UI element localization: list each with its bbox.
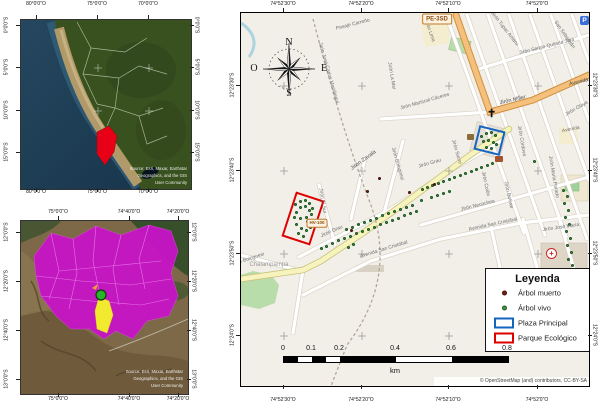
axis-label: 75°0'0"O	[87, 2, 107, 7]
axis-label: 10°0'0"S	[5, 100, 10, 119]
legend-item: Árbol vivo	[486, 300, 589, 315]
legend-item: Plaza Principal	[486, 315, 589, 330]
study-area-figure: Source: Esri, Maxar, Earthstar Geographi…	[0, 0, 606, 412]
scale-bar-graphic	[283, 356, 509, 363]
axis-tick	[448, 385, 449, 389]
tree-alive-point	[567, 258, 570, 261]
tree-alive-point	[299, 200, 302, 203]
axis-label: 74°40'0"O	[118, 397, 141, 402]
axis-tick	[187, 330, 191, 331]
svg-text:Source: Esri, Maxar, Earthstar: Source: Esri, Maxar, Earthstar	[130, 166, 188, 171]
tree-alive-point	[302, 235, 305, 238]
axis-tick	[236, 85, 240, 86]
tree-alive-point	[304, 205, 307, 208]
tree-alive-point	[409, 212, 412, 215]
city-map: N S O E ✝ + P Pasaje CarreñoJirón José C…	[240, 12, 590, 387]
tree-dead-point	[408, 191, 411, 194]
tree-alive-point	[295, 223, 298, 226]
axis-tick	[16, 330, 20, 331]
tree-alive-point	[459, 174, 462, 177]
axis-tick	[190, 25, 194, 26]
tree-dead-point	[378, 177, 381, 180]
legend-rect-symbol	[494, 317, 514, 328]
street-label: Chalampampa	[249, 262, 288, 268]
legend-item-label: Plaza Principal	[518, 318, 568, 327]
scale-bar-number: 0.1	[306, 345, 316, 352]
tree-alive-point	[590, 97, 591, 100]
scale-bar-unit: km	[390, 366, 400, 375]
axis-tick	[16, 152, 20, 153]
tree-alive-point	[442, 192, 445, 195]
tree-alive-point	[361, 230, 364, 233]
axis-tick	[187, 281, 191, 282]
scale-bar-number: 0	[281, 345, 285, 352]
tree-alive-point	[487, 139, 490, 142]
axis-tick	[16, 110, 20, 111]
tree-alive-point	[300, 227, 303, 230]
legend-item: Árbol muerto	[486, 285, 589, 300]
axis-tick	[129, 216, 130, 220]
legend-dot-symbol	[502, 290, 507, 295]
tree-alive-point	[490, 147, 493, 150]
axis-tick	[148, 188, 149, 192]
axis-label: 10°0'0"S	[194, 100, 199, 119]
axis-label: 12°0'0"S	[5, 222, 10, 241]
tree-alive-point	[295, 211, 298, 214]
tree-alive-point	[448, 190, 451, 193]
axis-tick	[588, 335, 592, 336]
svg-text:User Community: User Community	[151, 383, 184, 388]
axis-label: 70°0'0"O	[138, 2, 158, 7]
tree-alive-point	[426, 186, 429, 189]
tree-alive-point	[448, 178, 451, 181]
svg-text:Source: Esri, Maxar, Earthstar: Source: Esri, Maxar, Earthstar	[126, 369, 184, 374]
axis-tick	[187, 232, 191, 233]
province-map: Source: Esri, Maxar, Earthstar Geographi…	[20, 220, 189, 395]
axis-tick	[16, 281, 20, 282]
axis-label: 74°52'30"O	[270, 2, 295, 7]
tree-alive-point	[482, 140, 485, 143]
tree-alive-point	[495, 143, 498, 146]
compass-west-label: O	[250, 64, 257, 74]
tree-alive-point	[436, 194, 439, 197]
legend-item: Parque Ecológico	[486, 330, 589, 345]
tree-alive-point	[375, 217, 378, 220]
axis-label: 75°0'0"O	[48, 210, 68, 215]
scale-bar-number: 0.2	[334, 345, 344, 352]
tree-alive-point	[391, 219, 394, 222]
tree-alive-point	[349, 235, 352, 238]
tree-alive-point	[308, 202, 311, 205]
axis-tick	[16, 67, 20, 68]
tree-alive-point	[480, 135, 483, 138]
tree-dead-point	[366, 190, 369, 193]
legend-rect-symbol	[494, 332, 514, 343]
axis-label: 12°23'30"S	[592, 73, 597, 98]
axis-tick	[588, 85, 592, 86]
tree-alive-point	[379, 223, 382, 226]
tree-alive-point	[430, 196, 433, 199]
tree-alive-point	[343, 237, 346, 240]
axis-label: 12°20'0"S	[5, 270, 10, 292]
tree-alive-point	[399, 208, 402, 211]
axis-label: 74°20'0"O	[167, 397, 190, 402]
axis-label: 74°52'30"O	[270, 398, 295, 403]
axis-label: 12°23'40"S	[231, 158, 236, 183]
tree-alive-point	[325, 245, 328, 248]
tree-alive-point	[566, 244, 569, 247]
axis-label: 5°0'0"S	[194, 59, 199, 75]
tree-alive-point	[494, 134, 497, 137]
tree-alive-point	[305, 229, 308, 232]
legend: Leyenda Árbol muertoÁrbol vivoPlaza Prin…	[485, 268, 590, 352]
tree-alive-point	[308, 209, 311, 212]
tree-alive-point	[373, 226, 376, 229]
tree-alive-point	[337, 239, 340, 242]
church-icon: ✝	[487, 109, 496, 120]
monument-icon	[467, 134, 474, 140]
tree-alive-point	[294, 203, 297, 206]
tree-alive-point	[403, 214, 406, 217]
axis-tick	[588, 170, 592, 171]
tree-alive-point	[304, 199, 307, 202]
axis-label: 13°0'0"S	[5, 369, 10, 388]
stream	[241, 23, 254, 57]
tree-alive-point	[437, 182, 440, 185]
tree-alive-point	[311, 207, 314, 210]
tree-alive-point	[464, 172, 467, 175]
axis-tick	[58, 393, 59, 397]
tree-dead-point	[433, 183, 436, 186]
tree-alive-point	[475, 168, 478, 171]
town-hall-icon	[495, 156, 503, 162]
axis-tick	[129, 393, 130, 397]
tree-alive-point	[397, 217, 400, 220]
axis-label: 12°23'40"S	[592, 158, 597, 183]
svg-text:Geographics, and the GIS: Geographics, and the GIS	[137, 173, 187, 178]
tree-alive-point	[492, 141, 495, 144]
axis-label: 74°40'0"O	[118, 210, 141, 215]
axis-label: 74°52'10"O	[435, 398, 460, 403]
tree-alive-point	[570, 251, 573, 254]
tree-alive-point	[485, 146, 488, 149]
axis-label: 12°24'0"S	[231, 324, 236, 346]
tree-alive-point	[562, 189, 565, 192]
tree-alive-point	[453, 176, 456, 179]
tree-alive-point	[345, 228, 348, 231]
axis-label: 12°23'30"S	[231, 73, 236, 98]
tree-alive-point	[569, 237, 572, 240]
axis-tick	[236, 335, 240, 336]
axis-label: 74°52'0"O	[526, 2, 549, 7]
axis-tick	[190, 152, 194, 153]
axis-tick	[448, 8, 449, 12]
tree-alive-point	[420, 199, 423, 202]
tree-alive-point	[347, 246, 350, 249]
tree-alive-point	[387, 212, 390, 215]
compass-south-label: S	[286, 89, 292, 99]
axis-label: 15°0'0"S	[194, 142, 199, 161]
tree-alive-point	[571, 264, 574, 267]
axis-tick	[588, 253, 592, 254]
road-shield: PE-3SD	[422, 14, 452, 25]
axis-tick	[58, 216, 59, 220]
tree-alive-point	[485, 132, 488, 135]
tree-alive-point	[480, 166, 483, 169]
tree-alive-point	[352, 243, 355, 246]
axis-tick	[283, 8, 284, 12]
osm-attribution: © OpenStreetMap (and) contributors, CC-B…	[434, 377, 589, 386]
axis-tick	[148, 15, 149, 19]
tree-alive-point	[405, 206, 408, 209]
tree-dead-point	[350, 229, 353, 232]
axis-tick	[361, 8, 362, 12]
tree-alive-point	[415, 210, 418, 213]
axis-tick	[178, 216, 179, 220]
tree-alive-point	[367, 228, 370, 231]
tree-alive-point	[357, 223, 360, 226]
tree-alive-point	[567, 209, 570, 212]
axis-label: 74°52'0"O	[526, 398, 549, 403]
axis-label: 0°0'0"S	[5, 17, 10, 33]
tree-alive-point	[293, 216, 296, 219]
scale-bar: 00.10.20.40.60.8 km	[271, 345, 521, 375]
legend-title: Leyenda	[486, 273, 589, 285]
tree-alive-point	[490, 131, 493, 134]
compass-north-label: N	[285, 38, 292, 48]
axis-label: 15°0'0"S	[5, 142, 10, 161]
study-site-marker	[96, 290, 106, 300]
tree-alive-point	[486, 164, 489, 167]
svg-text:User Community: User Community	[155, 180, 188, 185]
tree-alive-point	[310, 213, 313, 216]
axis-tick	[178, 393, 179, 397]
axis-label: 12°20'0"S	[191, 270, 196, 292]
axis-tick	[16, 379, 20, 380]
axis-tick	[97, 188, 98, 192]
tree-alive-point	[563, 202, 566, 205]
tree-alive-point	[393, 210, 396, 213]
tree-alive-point	[411, 204, 414, 207]
scale-bar-number: 0.8	[502, 345, 512, 352]
tree-alive-point	[297, 232, 300, 235]
axis-tick	[190, 110, 194, 111]
tree-alive-point	[566, 195, 569, 198]
axis-label: 5°0'0"S	[5, 59, 10, 75]
tree-alive-point	[299, 206, 302, 209]
hospital-icon: +	[546, 248, 557, 259]
axis-label: 74°52'20"O	[348, 398, 373, 403]
tree-alive-point	[320, 247, 323, 250]
scale-bar-number: 0.4	[390, 345, 400, 352]
axis-tick	[361, 385, 362, 389]
tree-alive-point	[564, 216, 567, 219]
tree-alive-point	[491, 162, 494, 165]
axis-tick	[36, 15, 37, 19]
axis-tick	[283, 385, 284, 389]
axis-label: 75°0'0"O	[48, 397, 68, 402]
axis-label: 12°40'0"S	[5, 319, 10, 341]
axis-tick	[236, 253, 240, 254]
legend-dot-symbol	[502, 305, 507, 310]
tree-alive-point	[369, 219, 372, 222]
legend-item-label: Parque Ecológico	[518, 333, 577, 342]
peru-overview-map: Source: Esri, Maxar, Earthstar Geographi…	[20, 19, 192, 190]
parking-icon: P	[580, 16, 589, 25]
axis-label: 74°52'20"O	[348, 2, 373, 7]
axis-label: 0°0'0"S	[194, 17, 199, 33]
axis-tick	[36, 188, 37, 192]
tree-alive-point	[355, 232, 358, 235]
tree-alive-point	[381, 214, 384, 217]
axis-tick	[537, 385, 538, 389]
axis-label: 12°23'50"S	[231, 241, 236, 266]
tree-alive-point	[470, 170, 473, 173]
tree-alive-point	[421, 188, 424, 191]
axis-label: 12°0'0"S	[191, 222, 196, 241]
axis-tick	[537, 8, 538, 12]
axis-tick	[236, 170, 240, 171]
tree-alive-point	[385, 221, 388, 224]
axis-label: 12°40'0"S	[191, 319, 196, 341]
axis-tick	[187, 379, 191, 380]
axis-tick	[16, 232, 20, 233]
axis-tick	[97, 15, 98, 19]
axis-tick	[190, 67, 194, 68]
tree-alive-point	[363, 221, 366, 224]
tree-alive-point	[533, 160, 536, 163]
axis-label: 13°0'0"S	[191, 369, 196, 388]
axis-label: 74°52'10"O	[435, 2, 460, 7]
legend-item-label: Árbol muerto	[518, 288, 561, 297]
legend-item-label: Árbol vivo	[518, 303, 551, 312]
tree-alive-point	[299, 217, 302, 220]
axis-label: 74°20'0"O	[167, 210, 190, 215]
axis-label: 12°23'50"S	[592, 241, 597, 266]
tree-alive-point	[442, 180, 445, 183]
axis-tick	[16, 25, 20, 26]
axis-label: 80°0'0"O	[26, 2, 46, 7]
svg-text:Geographics, and the GIS: Geographics, and the GIS	[133, 376, 183, 381]
scale-bar-number: 0.6	[446, 345, 456, 352]
tree-alive-point	[331, 242, 334, 245]
road-shield: HV-100	[306, 219, 327, 228]
axis-label: 12°24'0"S	[592, 324, 597, 346]
